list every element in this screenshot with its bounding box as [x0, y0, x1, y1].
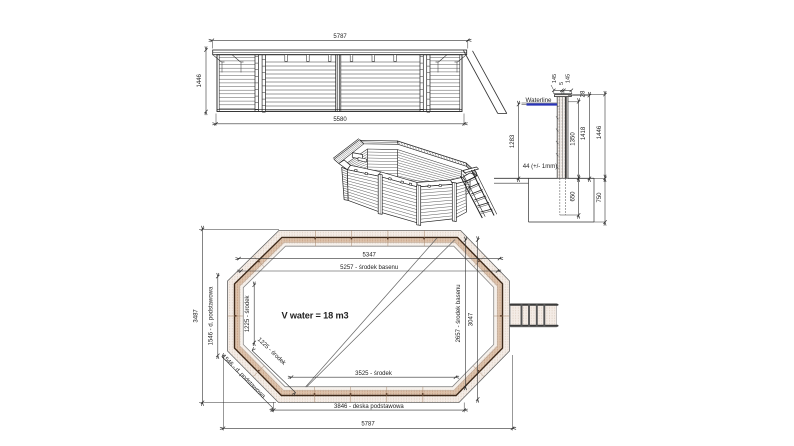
- svg-text:5787: 5787: [361, 422, 375, 428]
- svg-text:5: 5: [559, 82, 565, 85]
- svg-text:5580: 5580: [333, 117, 347, 123]
- svg-text:3846 - deska podstawowa: 3846 - deska podstawowa: [334, 404, 404, 410]
- svg-text:44 (+/- 1mm): 44 (+/- 1mm): [523, 164, 558, 170]
- svg-text:1546 - d. podstawowa: 1546 - d. podstawowa: [208, 286, 214, 345]
- svg-text:1446: 1446: [197, 73, 203, 87]
- svg-text:1283: 1283: [510, 134, 516, 148]
- svg-text:V water = 18 m3: V water = 18 m3: [282, 310, 349, 320]
- svg-text:3047: 3047: [469, 312, 475, 326]
- svg-text:1225 - środek: 1225 - środek: [245, 294, 251, 332]
- svg-text:1350: 1350: [571, 132, 577, 146]
- svg-text:5787: 5787: [333, 34, 347, 40]
- svg-text:145: 145: [552, 74, 558, 83]
- svg-text:650: 650: [571, 191, 577, 202]
- svg-text:145: 145: [565, 74, 571, 83]
- svg-text:28: 28: [581, 90, 587, 97]
- svg-text:5347: 5347: [363, 252, 377, 258]
- svg-text:5257 - środek basenu: 5257 - środek basenu: [340, 265, 398, 271]
- svg-text:750: 750: [597, 192, 603, 203]
- svg-text:3487: 3487: [194, 309, 200, 323]
- svg-text:3525 - środek: 3525 - środek: [355, 371, 393, 377]
- svg-text:1446: 1446: [597, 125, 603, 139]
- svg-text:2657 - środek basenu: 2657 - środek basenu: [456, 284, 462, 342]
- svg-text:1418: 1418: [581, 126, 587, 140]
